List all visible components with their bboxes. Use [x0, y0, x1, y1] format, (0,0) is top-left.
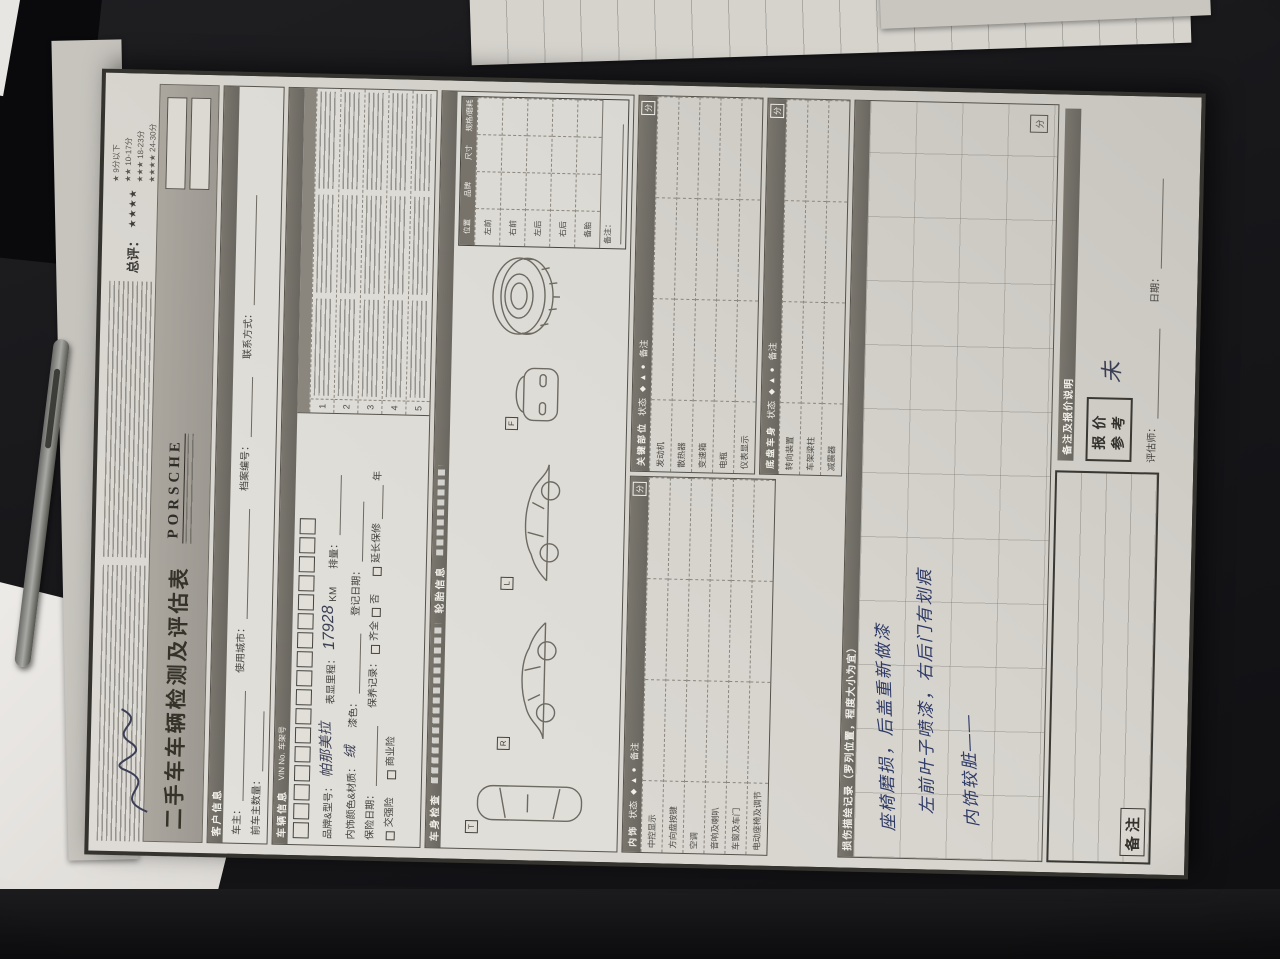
car-side-view-right: R [501, 616, 564, 747]
vin-char-box [296, 670, 312, 686]
fine-print-text [97, 565, 147, 842]
checkbox [387, 770, 396, 779]
remarks-label: 备注 [1119, 808, 1145, 857]
tire-row: 备胎 [574, 99, 602, 248]
date-field: 日期： [1146, 179, 1164, 303]
warranty-field: 延长保修年 [367, 471, 384, 576]
tire-position: 备胎 [575, 210, 600, 248]
interior-table: 内饰 状态◆ ▲ ● 备注 分 中控显示方向盘按键空调音响及喇叭车窗及车门电动座… [621, 476, 776, 856]
checkbox [372, 608, 381, 617]
tire-position: 右前 [500, 209, 525, 247]
body-tire-section: 车身检查 轮胎信息 T R L [424, 90, 634, 852]
checkbox [371, 645, 380, 654]
checkbox [386, 831, 395, 840]
overall-label: 总评： [122, 234, 142, 273]
score-icon: 分 [633, 482, 647, 496]
vin-char-box [297, 651, 313, 667]
car-side-view-left: L [504, 456, 567, 587]
owner-field: 车主： [228, 691, 246, 835]
handwritten-note: 左前叶子喷漆，右后门有划痕 [910, 567, 938, 814]
tire-block: 位置品牌尺寸规格/磨耗 左前 右前 左后 右后 [452, 92, 634, 346]
file-no-field: 档案编号： [236, 377, 254, 491]
tire-row: 右前 [499, 98, 527, 247]
vin-char-box [300, 518, 316, 534]
tire-row: 左前 [474, 97, 502, 246]
row-number: 5 [406, 401, 429, 416]
tire-col-header: 尺寸 [461, 134, 477, 171]
paper-sliver [0, 0, 24, 96]
file-box [189, 98, 211, 190]
remarks-box: 备注 [1046, 471, 1159, 865]
vin-char-box [297, 613, 313, 629]
porsche-logo: PORSCHE [165, 433, 195, 544]
star-scale: ★ 9分以下★★ 10-17分★★★ 18-23分★★★★ 24-30分 [110, 123, 158, 183]
evaluator-field: 评估师： [1142, 329, 1160, 463]
displacement-field: 排量： [320, 474, 342, 568]
ins-date-field: 保险日期： [361, 726, 379, 840]
price-reference-stamp: 报价参考 [1085, 397, 1132, 462]
star-scale-entry: ★★ 10-17分 [122, 123, 134, 183]
maint-field: 保养记录： 齐全 否 [364, 594, 382, 708]
photo-scene: { "legend": { "overall_label": "总评：", "o… [0, 0, 1280, 959]
vin-char-box [298, 575, 314, 591]
inspection-form-page: 总评： ★★★★ ★ 9分以下★★ 10-17分★★★ 18-23分★★★★ 2… [84, 69, 1206, 880]
tire-position: 左前 [475, 208, 500, 246]
handwritten-notes: 座椅磨损，后盖重新做漆 左前叶子喷漆，右后门有划痕 内饰较脏—— [868, 584, 981, 833]
tire-row: 右后 [549, 99, 577, 248]
car-outline-diagrams: T R L F [440, 342, 627, 852]
signature-row: 评估师： 日期： [1142, 110, 1165, 463]
tire-illustration [456, 252, 608, 341]
tire-note: 备注： [599, 100, 628, 249]
vin-char-box [297, 632, 313, 648]
vehicle-section: 车辆信息 VIN No. 车架号 品牌&型号：帕那美拉 表显里程：17928KM… [271, 87, 437, 848]
mileage-field: 表显里程：17928KM [317, 586, 340, 704]
handwritten-note: 座椅磨损，后盖重新做漆 [867, 584, 899, 832]
syx-field: 商业险 [381, 736, 397, 779]
pen-clip-icon [45, 369, 61, 449]
vin-char-box [295, 708, 311, 724]
handwritten-mileage: 17928 [320, 605, 339, 650]
customer-section: 客户信息 车主： 使用城市： 档案编号： 联系方式： 前车主数量： [207, 85, 285, 844]
tire-col-header: 规格/磨耗 [462, 97, 478, 134]
car-front-view: F [509, 362, 568, 427]
handwritten-note: 内饰较脏—— [947, 580, 984, 828]
scoring-table: 1 2 3 [297, 88, 436, 416]
chassis-table: 底盘车身 状态◆ ▲ ● 备注 分 转向装置车架梁柱减震器 [759, 98, 851, 477]
row-number: 4 [382, 400, 405, 415]
tire-col-header: 品牌 [460, 171, 476, 208]
vin-char-box [298, 594, 314, 610]
vehicle-fields: 品牌&型号：帕那美拉 表显里程：17928KM 排量： 内饰颜色&材质：绒 漆色… [288, 413, 430, 847]
vin-char-box [294, 765, 310, 781]
brand-wordmark: PORSCHE [165, 433, 185, 543]
score-icon: 分 [641, 101, 655, 115]
vin-char-box [295, 727, 311, 743]
prev-owner-field: 前车主数量： [247, 711, 265, 835]
model-field: 品牌&型号：帕那美拉 [314, 722, 337, 839]
checkbox [373, 567, 382, 576]
form-title: 二手车车辆检测及评估表 [158, 565, 194, 830]
damage-notes-area: 座椅磨损，后盖重新做漆 左前叶子喷漆，右后门有划痕 内饰较脏—— 分 [853, 101, 1058, 861]
row-number: 3 [358, 400, 381, 415]
tire-table: 位置品牌尺寸规格/磨耗 左前 右前 左后 右后 [458, 96, 629, 250]
jqx-field: 交强险 [380, 797, 396, 840]
score-icon: 分 [770, 104, 784, 118]
vin-char-box [293, 803, 309, 819]
city-field: 使用城市： [231, 509, 250, 673]
contact-field: 联系方式： [239, 195, 258, 359]
tire-position: 右后 [550, 210, 575, 248]
header-field-boxes [165, 97, 211, 190]
vin-char-box [293, 822, 309, 838]
score-icon: 分 [1030, 115, 1048, 133]
handwritten-interior: 绒 [339, 745, 358, 759]
paint-field: 漆色： [340, 633, 361, 727]
brand-subtext [185, 434, 195, 544]
row-number: 1 [310, 398, 333, 413]
row-number: 2 [334, 399, 357, 414]
quote-band: 备注及报价说明 [1057, 108, 1081, 461]
vin-char-box [299, 556, 315, 572]
handwritten-model: 帕那美拉 [315, 722, 337, 779]
star-scale-entry: ★★★★ 24-30分 [146, 123, 158, 183]
tire-position: 左后 [525, 209, 550, 247]
car-top-view: T [469, 775, 590, 832]
form-footer: 备注 备注及报价说明 报价参考 未 评估师： 日期： [1046, 104, 1167, 864]
vin-char-box [294, 746, 310, 762]
fine-print-text [103, 281, 153, 558]
vin-char-box [299, 537, 315, 553]
damage-record-section: 损伤描绘记录（罗列位置，程度大小为宜） 座椅磨损，后盖重新做漆 左前叶子喷漆，右… [837, 100, 1059, 862]
inspection-tables: 内饰 状态◆ ▲ ● 备注 分 中控显示方向盘按键空调音响及喇叭车窗及车门电动座… [621, 95, 850, 858]
vin-char-box [296, 689, 312, 705]
reg-date-field: 登记日期： [343, 502, 365, 616]
file-box [165, 97, 187, 189]
overall-rating-legend: 总评： ★★★★ ★ 9分以下★★ 10-17分★★★ 18-23分★★★★ 2… [109, 83, 157, 274]
vin-label: VIN No. 车架号 [276, 726, 288, 780]
tire-col-header: 位置 [459, 208, 475, 245]
star-scale-entry: ★ 9分以下 [110, 123, 122, 183]
quote-area: 备注及报价说明 报价参考 未 评估师： 日期： [1055, 104, 1167, 467]
tire-row: 左后 [524, 98, 552, 247]
vin-char-box [294, 784, 310, 800]
overall-stars: ★★★★ [127, 188, 139, 228]
interior-field: 内饰颜色&材质：绒 [338, 745, 359, 839]
star-scale-entry: ★★★ 18-23分 [134, 123, 146, 183]
clipboard-edge [0, 889, 1280, 959]
handwritten-pending: 未 [1094, 361, 1127, 384]
key-parts-table: 关键部位 状态◆ ▲ ● 备注 分 发动机散热器变速箱电瓶仪表显示 [630, 95, 764, 475]
